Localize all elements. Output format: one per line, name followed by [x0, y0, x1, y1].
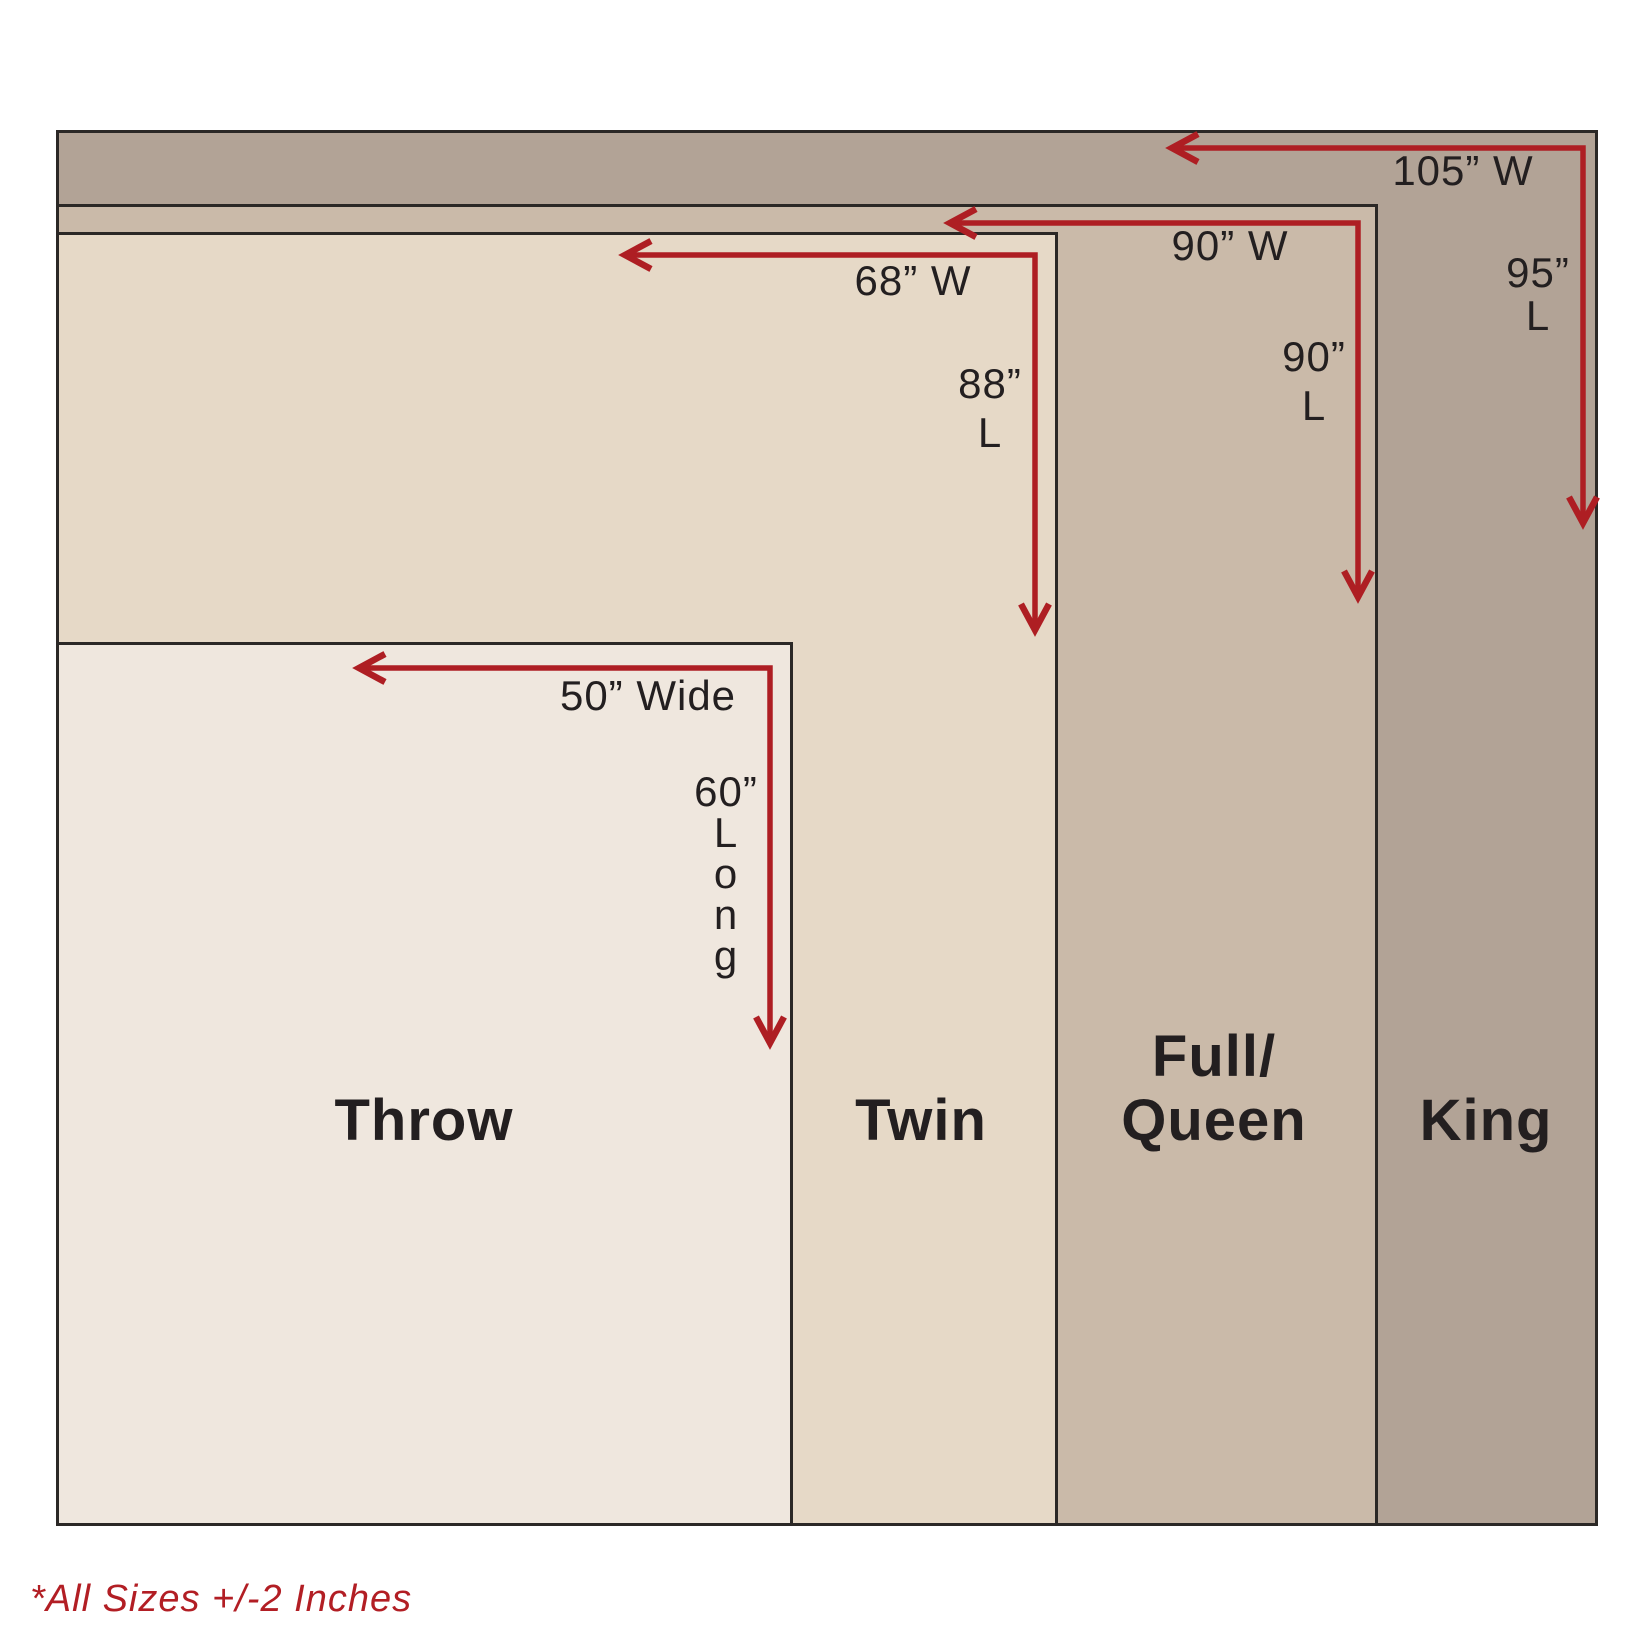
blanket-size-comparison-diagram: 50” Wide 60” L o n g 68” W 88” L 90” W 9…	[0, 0, 1650, 1650]
full-queen-width-label: 90” W	[1130, 222, 1330, 270]
twin-length-label: 88” L	[940, 359, 1040, 457]
full-queen-size-name: Full/ Queen	[1064, 1025, 1364, 1153]
throw-length-label: 60” L o n g	[676, 771, 776, 976]
king-size-name: King	[1361, 1089, 1611, 1153]
sizes-tolerance-footnote: *All Sizes +/-2 Inches	[30, 1578, 412, 1621]
king-width-label: 105” W	[1363, 147, 1563, 195]
twin-width-label: 68” W	[813, 257, 1013, 305]
throw-width-label: 50” Wide	[498, 672, 798, 720]
twin-size-name: Twin	[771, 1089, 1071, 1153]
throw-size-name: Throw	[224, 1089, 624, 1153]
full-queen-length-label: 90” L	[1264, 332, 1364, 430]
king-length-label: 95” L	[1488, 251, 1588, 337]
